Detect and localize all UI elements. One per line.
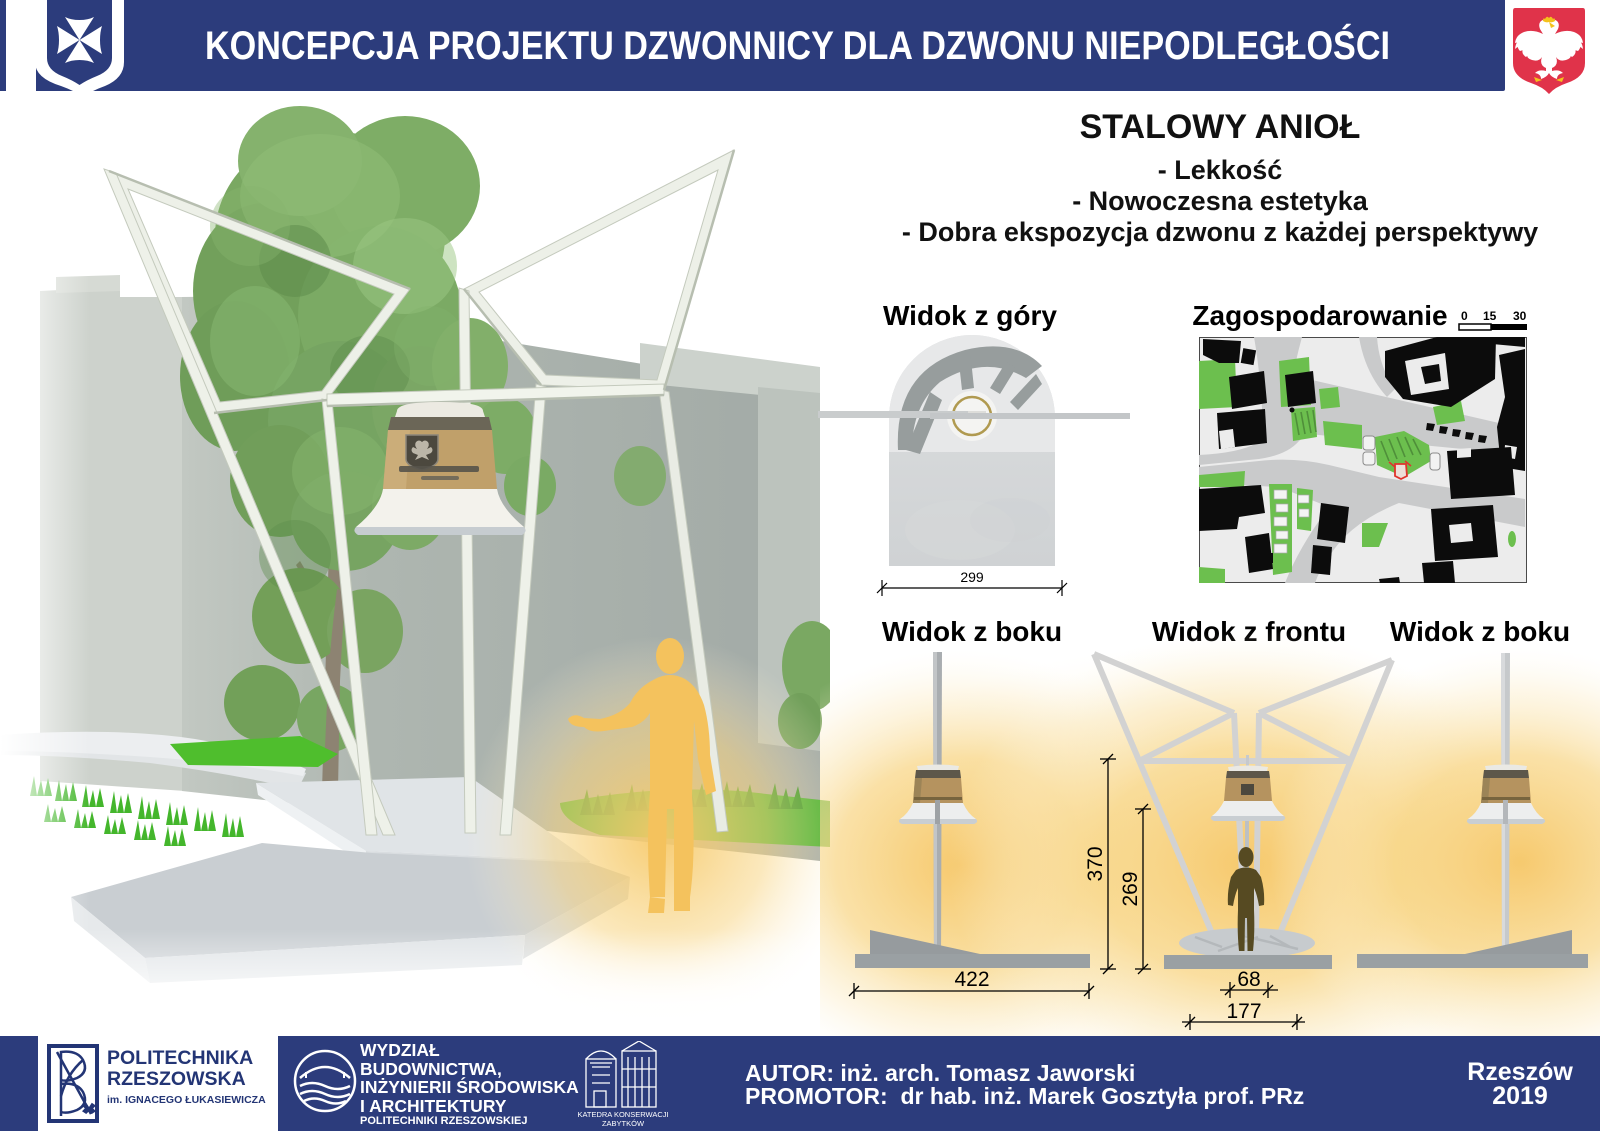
- svg-text:269: 269: [1119, 871, 1142, 906]
- svg-text:68: 68: [1237, 968, 1260, 991]
- svg-text:KONCEPCJA PROJEKTU DZWONNICY D: KONCEPCJA PROJEKTU DZWONNICY DLA DZWONU …: [205, 22, 1390, 68]
- svg-text:0: 0: [1461, 309, 1468, 323]
- svg-text:15: 15: [1483, 309, 1497, 323]
- svg-text:370: 370: [1084, 846, 1107, 881]
- svg-text:ZABYTKÓW: ZABYTKÓW: [602, 1119, 645, 1128]
- svg-text:177: 177: [1226, 1000, 1261, 1023]
- svg-text:KATEDRA KONSERWACJI: KATEDRA KONSERWACJI: [578, 1110, 668, 1119]
- svg-text:299: 299: [960, 569, 984, 585]
- svg-text:422: 422: [954, 968, 989, 991]
- svg-text:30: 30: [1513, 309, 1527, 323]
